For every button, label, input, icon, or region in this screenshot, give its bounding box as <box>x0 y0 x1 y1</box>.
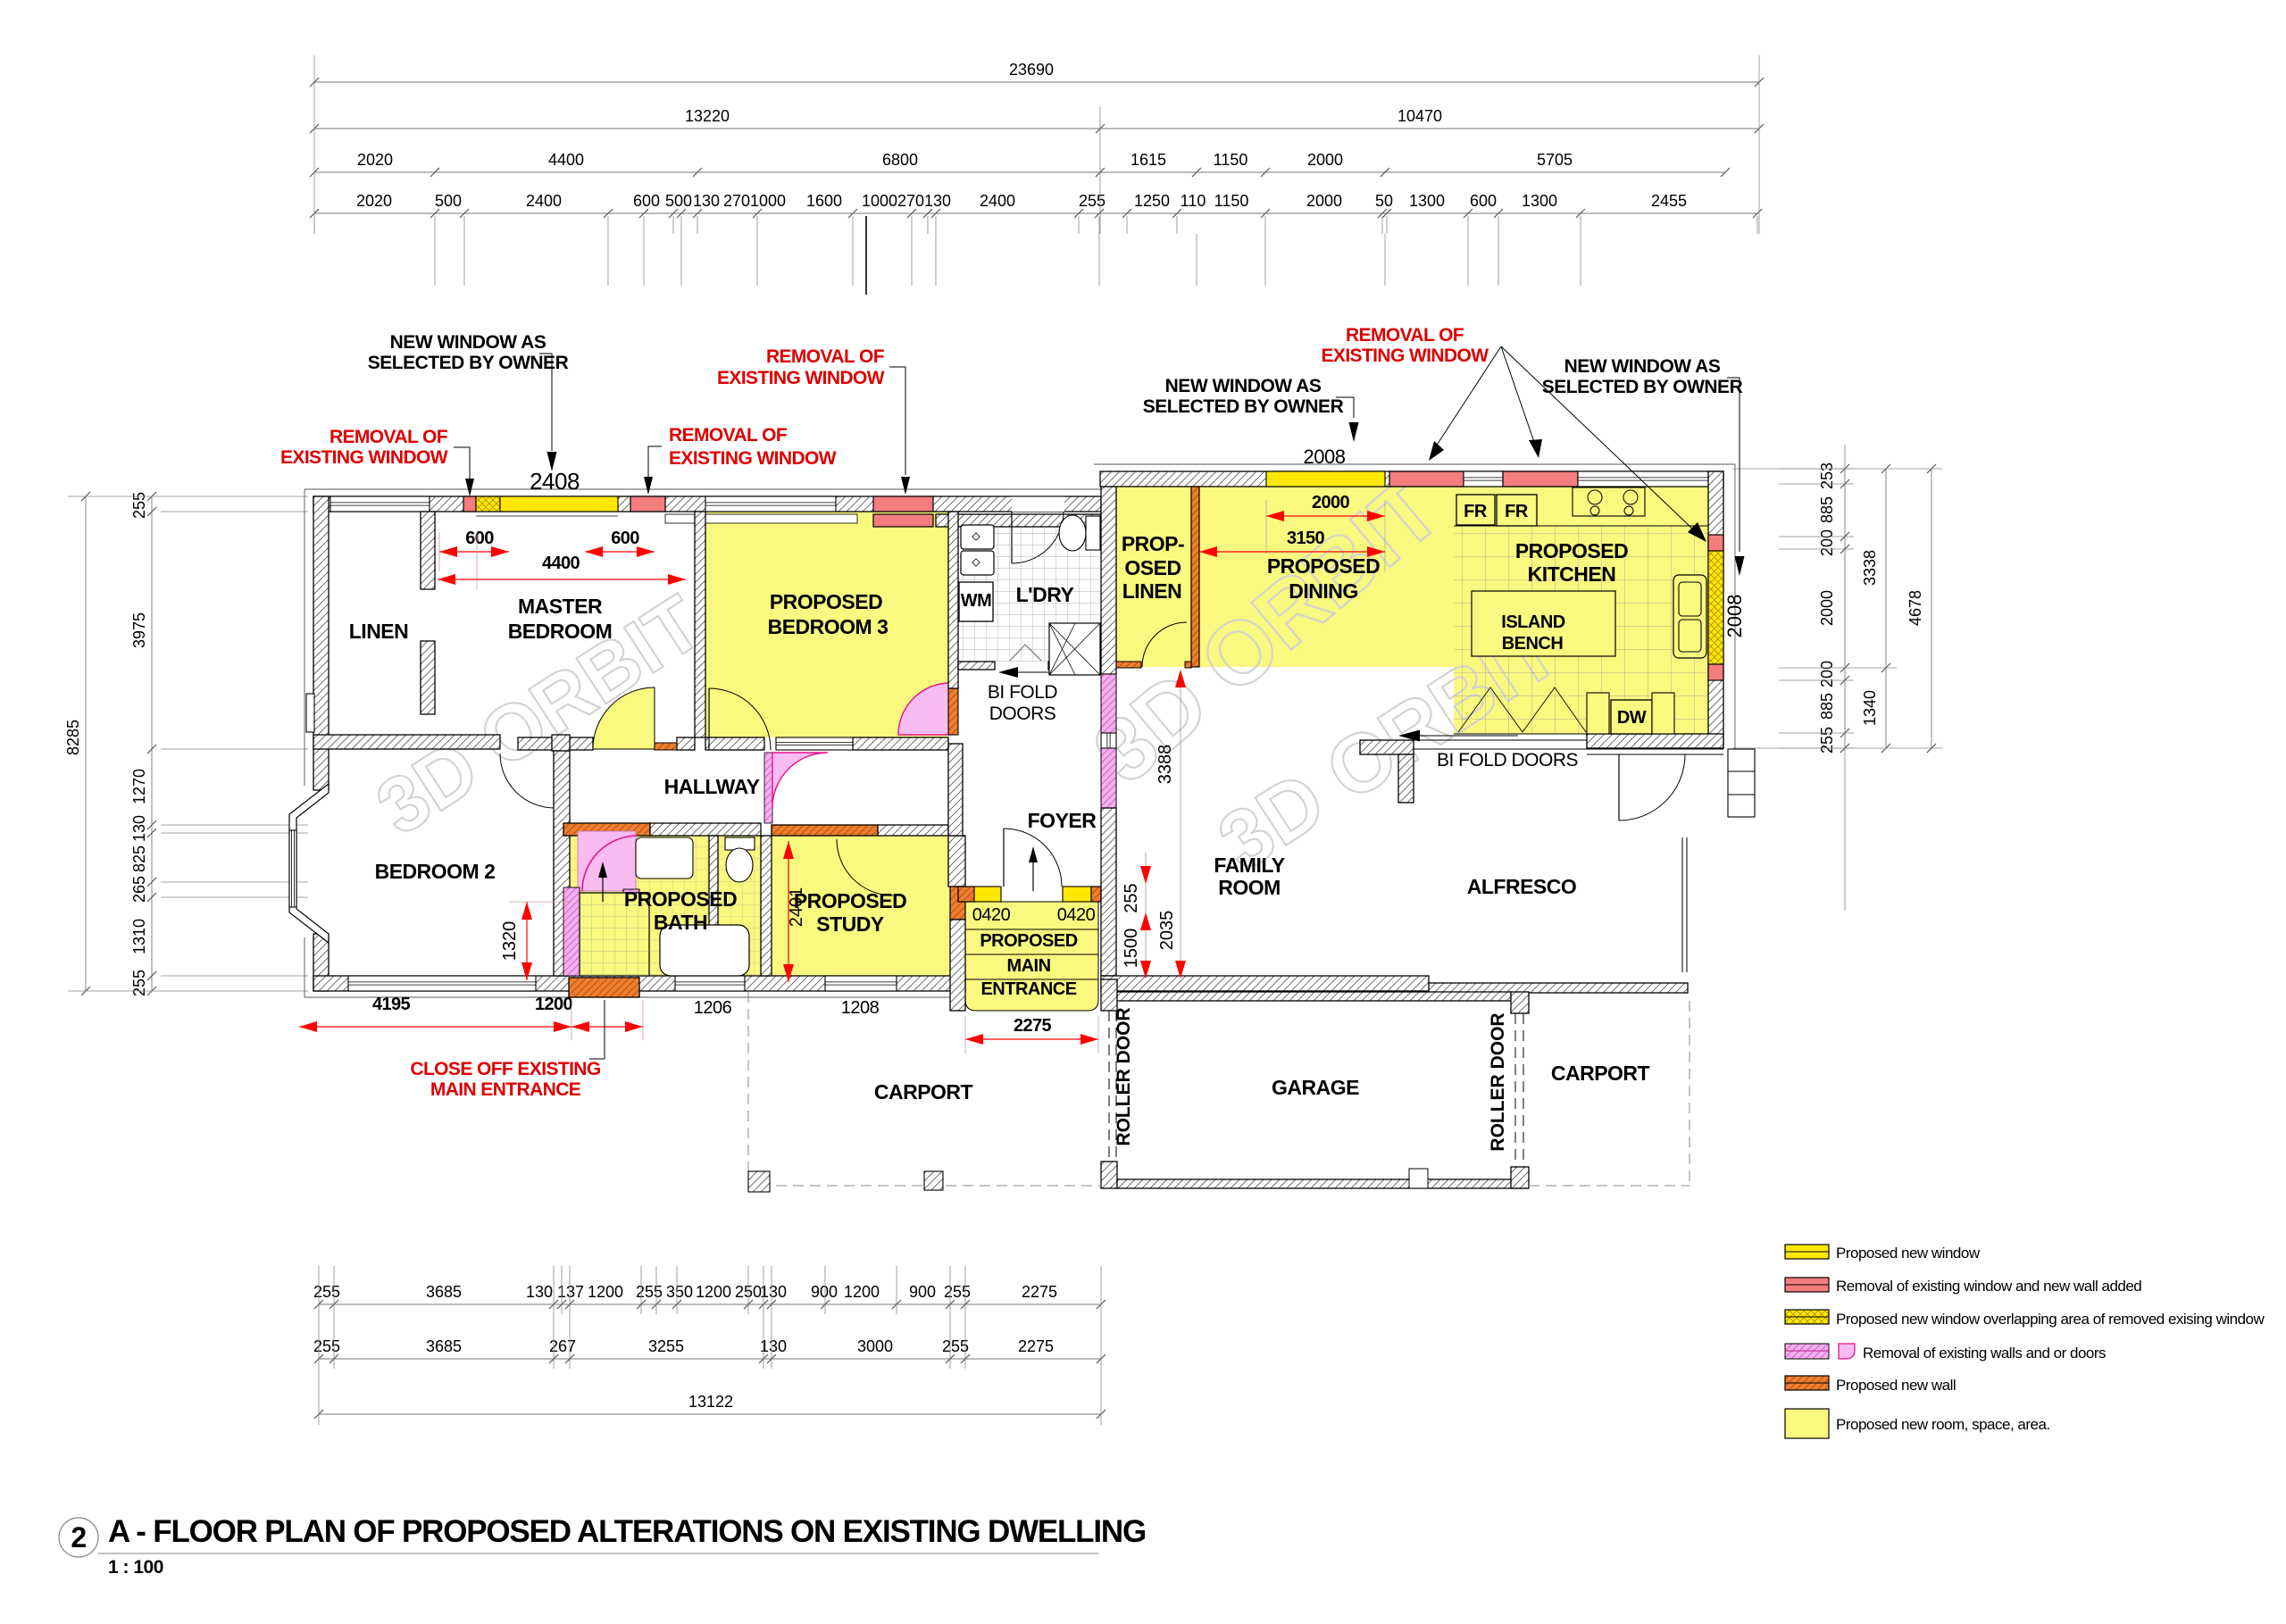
svg-text:2035: 2035 <box>1157 911 1177 951</box>
svg-text:1310: 1310 <box>130 919 148 954</box>
svg-text:2275: 2275 <box>1018 1337 1054 1355</box>
svg-text:KITCHEN: KITCHEN <box>1528 562 1616 586</box>
svg-text:FAMILY: FAMILY <box>1214 854 1284 877</box>
svg-text:BI FOLD: BI FOLD <box>988 682 1058 703</box>
svg-text:265: 265 <box>130 876 148 903</box>
svg-text:Proposed new room, space, area: Proposed new room, space, area. <box>1836 1416 2050 1433</box>
svg-text:ROLLER DOOR: ROLLER DOOR <box>1488 1012 1508 1151</box>
svg-text:3000: 3000 <box>857 1337 893 1355</box>
svg-text:REMOVAL OF: REMOVAL OF <box>330 427 448 447</box>
svg-text:500: 500 <box>665 192 692 210</box>
svg-text:255: 255 <box>636 1283 663 1301</box>
svg-text:NEW WINDOW AS: NEW WINDOW AS <box>1564 356 1721 377</box>
svg-text:10470: 10470 <box>1397 107 1442 125</box>
svg-text:1200: 1200 <box>844 1283 880 1301</box>
svg-text:130: 130 <box>760 1337 787 1355</box>
svg-text:23690: 23690 <box>1009 61 1054 79</box>
svg-text:825: 825 <box>130 845 148 872</box>
svg-text:Removal of existing window and: Removal of existing window and new wall … <box>1836 1278 2141 1295</box>
svg-text:1600: 1600 <box>806 192 842 210</box>
svg-text:A - FLOOR PLAN OF PROPOSED ALT: A - FLOOR PLAN OF PROPOSED ALTERATIONS O… <box>108 1514 1146 1549</box>
svg-text:255: 255 <box>313 1283 340 1301</box>
svg-text:2008: 2008 <box>1723 595 1746 638</box>
svg-text:255: 255 <box>1818 727 1836 754</box>
svg-text:270: 270 <box>897 192 924 210</box>
svg-text:1 : 100: 1 : 100 <box>108 1557 163 1578</box>
svg-text:Removal of existing walls and: Removal of existing walls and or doors <box>1863 1345 2106 1362</box>
svg-text:2401: 2401 <box>787 887 806 928</box>
svg-text:1000: 1000 <box>750 192 786 210</box>
svg-text:BEDROOM 3: BEDROOM 3 <box>768 615 889 638</box>
svg-text:BI FOLD DOORS: BI FOLD DOORS <box>1437 750 1579 770</box>
svg-text:4195: 4195 <box>372 995 411 1014</box>
svg-text:BEDROOM: BEDROOM <box>508 620 613 643</box>
svg-text:4678: 4678 <box>1906 590 1924 626</box>
svg-text:110: 110 <box>1181 192 1206 210</box>
svg-text:0420: 0420 <box>972 905 1011 925</box>
svg-text:FR: FR <box>1505 502 1529 521</box>
svg-text:1500: 1500 <box>1122 929 1141 969</box>
svg-text:EXISTING WINDOW: EXISTING WINDOW <box>1322 346 1489 366</box>
svg-text:3255: 3255 <box>648 1337 684 1355</box>
svg-text:600: 600 <box>1470 192 1497 210</box>
svg-text:130: 130 <box>924 192 951 210</box>
svg-text:137: 137 <box>557 1283 584 1301</box>
svg-text:2408: 2408 <box>530 468 580 495</box>
svg-text:2000: 2000 <box>1306 192 1342 210</box>
svg-text:CLOSE OFF EXISTING: CLOSE OFF EXISTING <box>410 1059 600 1079</box>
svg-text:1200: 1200 <box>696 1283 731 1301</box>
svg-text:1150: 1150 <box>1214 151 1248 169</box>
svg-text:DOORS: DOORS <box>989 704 1056 724</box>
svg-text:600: 600 <box>465 529 494 548</box>
svg-text:ALFRESCO: ALFRESCO <box>1467 875 1577 898</box>
svg-text:200: 200 <box>1818 529 1836 556</box>
svg-text:4400: 4400 <box>548 151 584 169</box>
svg-text:EXISTING WINDOW: EXISTING WINDOW <box>280 447 448 468</box>
svg-text:1300: 1300 <box>1409 192 1445 210</box>
svg-text:1000: 1000 <box>862 192 897 210</box>
svg-text:130: 130 <box>526 1283 553 1301</box>
svg-text:130: 130 <box>130 815 148 842</box>
svg-text:MASTER: MASTER <box>518 595 603 618</box>
svg-text:270: 270 <box>723 192 750 210</box>
svg-text:885: 885 <box>1818 693 1836 720</box>
svg-text:NEW WINDOW AS: NEW WINDOW AS <box>390 332 546 353</box>
svg-text:GARAGE: GARAGE <box>1272 1076 1359 1099</box>
svg-text:SELECTED BY OWNER: SELECTED BY OWNER <box>368 353 569 373</box>
svg-text:255: 255 <box>1122 883 1141 912</box>
svg-text:PROPOSED: PROPOSED <box>624 887 737 911</box>
svg-text:Proposed new window: Proposed new window <box>1836 1245 1981 1262</box>
svg-text:PROPOSED: PROPOSED <box>794 889 906 912</box>
svg-text:ROLLER DOOR: ROLLER DOOR <box>1114 1007 1134 1145</box>
svg-text:REMOVAL OF: REMOVAL OF <box>766 346 885 367</box>
svg-text:DINING: DINING <box>1289 579 1358 603</box>
svg-text:267: 267 <box>549 1337 576 1355</box>
svg-text:BATH: BATH <box>654 911 707 934</box>
svg-text:13220: 13220 <box>685 107 730 125</box>
svg-text:255: 255 <box>130 970 148 996</box>
svg-text:L'DRY: L'DRY <box>1016 583 1074 606</box>
svg-text:ROOM: ROOM <box>1218 876 1281 899</box>
svg-text:255: 255 <box>313 1337 340 1355</box>
svg-text:2020: 2020 <box>356 192 392 210</box>
svg-text:HALLWAY: HALLWAY <box>664 775 760 798</box>
svg-text:6800: 6800 <box>882 151 918 169</box>
svg-text:50: 50 <box>1375 192 1393 210</box>
svg-text:ENTRANCE: ENTRANCE <box>980 979 1076 999</box>
svg-text:CARPORT: CARPORT <box>874 1080 973 1103</box>
svg-text:200: 200 <box>1818 661 1836 687</box>
svg-text:Proposed new window overlappin: Proposed new window overlapping area of … <box>1836 1311 2265 1328</box>
svg-text:2: 2 <box>71 1521 86 1553</box>
svg-text:Proposed new wall: Proposed new wall <box>1836 1377 1956 1394</box>
svg-text:2000: 2000 <box>1312 493 1350 512</box>
svg-text:2275: 2275 <box>1014 1016 1052 1036</box>
svg-text:BEDROOM 2: BEDROOM 2 <box>375 860 496 883</box>
svg-text:2275: 2275 <box>1022 1283 1057 1301</box>
svg-text:1200: 1200 <box>535 995 573 1014</box>
svg-text:255: 255 <box>1079 192 1105 210</box>
svg-text:1320: 1320 <box>500 921 520 962</box>
svg-text:2400: 2400 <box>526 192 562 210</box>
svg-text:MAIN: MAIN <box>1006 956 1050 976</box>
svg-text:SELECTED BY OWNER: SELECTED BY OWNER <box>1542 377 1743 397</box>
svg-text:2000: 2000 <box>1818 590 1836 626</box>
svg-text:1150: 1150 <box>1214 192 1249 210</box>
svg-text:600: 600 <box>633 192 660 210</box>
svg-text:1615: 1615 <box>1130 151 1166 169</box>
svg-text:2455: 2455 <box>1651 192 1687 210</box>
svg-text:FR: FR <box>1464 502 1488 521</box>
svg-text:350: 350 <box>666 1283 693 1301</box>
svg-text:1206: 1206 <box>694 998 732 1018</box>
svg-text:STUDY: STUDY <box>816 912 884 936</box>
svg-text:DW: DW <box>1617 708 1647 728</box>
svg-text:3975: 3975 <box>130 612 148 648</box>
svg-text:PROPOSED: PROPOSED <box>770 590 882 613</box>
svg-text:8285: 8285 <box>64 720 82 755</box>
svg-text:SELECTED BY OWNER: SELECTED BY OWNER <box>1143 396 1344 417</box>
svg-text:ISLAND: ISLAND <box>1501 612 1565 632</box>
svg-text:3150: 3150 <box>1287 529 1325 548</box>
svg-text:REMOVAL OF: REMOVAL OF <box>1346 325 1464 346</box>
svg-text:2020: 2020 <box>357 151 393 169</box>
svg-text:CARPORT: CARPORT <box>1551 1062 1650 1085</box>
svg-text:0420: 0420 <box>1057 905 1096 925</box>
svg-text:2008: 2008 <box>1304 446 1346 468</box>
svg-text:1300: 1300 <box>1522 192 1557 210</box>
svg-text:255: 255 <box>942 1337 969 1355</box>
svg-text:255: 255 <box>130 492 148 519</box>
svg-text:PROPOSED: PROPOSED <box>1267 554 1380 578</box>
svg-text:3685: 3685 <box>426 1337 462 1355</box>
svg-text:885: 885 <box>1818 496 1836 523</box>
svg-text:2000: 2000 <box>1307 151 1343 169</box>
svg-text:LINEN: LINEN <box>1122 579 1182 603</box>
svg-text:900: 900 <box>811 1283 838 1301</box>
svg-text:FOYER: FOYER <box>1028 809 1097 832</box>
svg-text:130: 130 <box>693 192 720 210</box>
svg-text:1270: 1270 <box>130 769 148 804</box>
svg-text:EXISTING WINDOW: EXISTING WINDOW <box>717 368 885 388</box>
svg-text:1340: 1340 <box>1861 690 1879 726</box>
svg-text:1208: 1208 <box>841 998 880 1018</box>
svg-text:3338: 3338 <box>1861 550 1879 586</box>
svg-text:PROPOSED: PROPOSED <box>980 931 1077 951</box>
svg-text:4400: 4400 <box>542 554 580 573</box>
svg-text:REMOVAL OF: REMOVAL OF <box>669 425 788 446</box>
svg-text:WM: WM <box>961 591 992 611</box>
svg-text:253: 253 <box>1818 462 1836 489</box>
svg-text:900: 900 <box>909 1283 936 1301</box>
svg-text:PROPOSED: PROPOSED <box>1515 539 1628 562</box>
svg-text:3388: 3388 <box>1156 745 1175 785</box>
svg-text:130: 130 <box>760 1283 787 1301</box>
svg-text:2400: 2400 <box>980 192 1015 210</box>
svg-text:NEW WINDOW AS: NEW WINDOW AS <box>1165 376 1322 396</box>
svg-text:1200: 1200 <box>588 1283 623 1301</box>
svg-text:EXISTING WINDOW: EXISTING WINDOW <box>669 448 837 469</box>
svg-text:1250: 1250 <box>1134 192 1170 210</box>
svg-text:3685: 3685 <box>426 1283 462 1301</box>
svg-text:OSED: OSED <box>1124 556 1181 579</box>
svg-text:BENCH: BENCH <box>1502 634 1564 654</box>
svg-text:LINEN: LINEN <box>349 620 409 643</box>
svg-text:MAIN ENTRANCE: MAIN ENTRANCE <box>430 1079 581 1100</box>
svg-text:600: 600 <box>611 529 639 548</box>
svg-text:255: 255 <box>944 1283 971 1301</box>
svg-text:500: 500 <box>435 192 462 210</box>
svg-text:13122: 13122 <box>688 1393 733 1411</box>
svg-text:5705: 5705 <box>1537 151 1573 169</box>
svg-text:PROP-: PROP- <box>1122 532 1184 555</box>
